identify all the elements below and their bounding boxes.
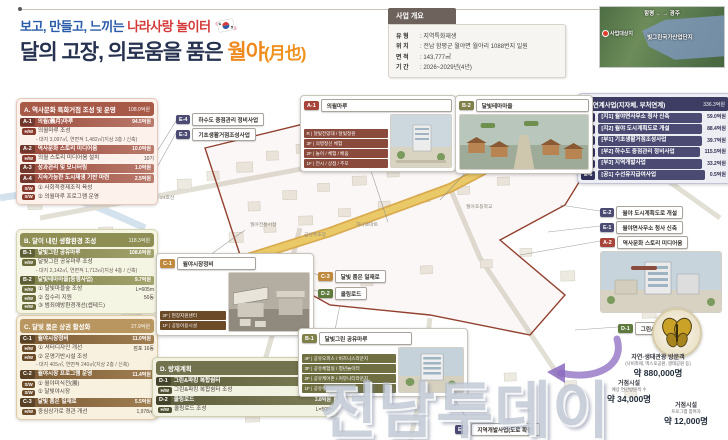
item-amount: 3.8억원 <box>315 397 331 403</box>
budget-row: S/W ① 월야미식전(展) <box>20 381 154 388</box>
section-a-total: 108.0억원 <box>128 106 150 113</box>
linked-project-row: E-4 [부2] 하수도 중점관리 정비사업 115.5억원 <box>581 147 728 157</box>
overview-label: 면 적 <box>396 52 420 61</box>
budget-row: H/W 의월 스토리 미디어움 설치 10기 <box>20 155 154 162</box>
budget-row: - 대지 3,097㎡, 연면적 1,482㎡(지상 3층 / 신축) <box>20 137 154 143</box>
item-name: [부3] 지역개발사업 <box>598 159 702 169</box>
floor-row: 3F | 공유체험실 / 청년놀이터 <box>302 364 396 373</box>
section-e-panel: E. 연계사업(지자체, 부처연계)336.3억원 E-1 [지1] 월야면사무… <box>577 93 728 184</box>
floor-row: 1F | 공동이용시설 <box>160 321 226 330</box>
item-name: [지2] 월야 도시계획도로 개설 <box>598 124 702 134</box>
budget-row: A-1 의월(義月)마루 94.5억원 <box>20 118 154 127</box>
item-amount: 0.5억원 <box>710 172 726 178</box>
callout-label: 역사문화 스토리 미디어움 <box>617 236 689 249</box>
callout-label: 기초생활거점조성사업 <box>192 128 255 141</box>
item-name: 달빛테마마을(동행사업) <box>38 277 133 284</box>
hw-sw-badge: H/W <box>22 295 36 302</box>
item-name: [지1] 월야면사무소 청사 신축 <box>598 113 702 123</box>
hw-sw-badge: S/W <box>22 381 35 388</box>
callout-code: E-4 <box>176 115 190 124</box>
item-text: 달빛그린 공유마루 조성 <box>38 259 154 266</box>
floor-row: 2F | 공유케어존 / 커뮤니티라운지 <box>302 374 396 383</box>
title-line2-hanja: (月也) <box>264 44 305 63</box>
overview-value: : 지역특화재생 <box>420 31 558 40</box>
item-code: C-3 <box>20 398 35 407</box>
item-text: ① 셔터디자인 개선 <box>38 345 131 352</box>
callout-code: B-1 <box>302 334 317 343</box>
item-text: - 대지 3,097㎡, 연면적 1,482㎡(지상 3층 / 신축) <box>36 137 154 143</box>
callout-code: E-3 <box>176 130 190 139</box>
overview-label: 기 간 <box>396 62 420 71</box>
facilities-render-image <box>600 251 722 313</box>
floor-row: R | 달빛전망대 / 달빛정원 <box>304 129 388 138</box>
item-amount: 2.5억원 <box>135 176 151 182</box>
map-callout-tag: C-3 달빛 품은 일재로 <box>318 270 386 283</box>
map-callout-tag: E-1 월야면사무소 청사 신축 <box>600 221 683 234</box>
item-text: 그린&파킹 복합쉼터 조성 <box>174 387 314 394</box>
map-callout-tag: E-5 지역개발사업(도로 확장) <box>455 423 540 436</box>
title-line2: 달의 고장, 의로움을 품은 월야(月也) <box>20 36 305 66</box>
item-amount: 10기 <box>144 156 154 162</box>
overview-label: 위 치 <box>396 41 420 50</box>
item-name: 의월(義月)마루 <box>38 119 130 126</box>
map-text-label: 월야초등학교 <box>466 203 492 210</box>
b2-render-image <box>459 114 589 170</box>
callout-label: 의월마루 <box>321 99 452 112</box>
map-callout-tag: E-3 기초생활거점조성사업 <box>176 128 256 141</box>
item-text: ① 사회적경제조직 육성 <box>38 185 154 192</box>
project-overview-box: 사업 개요 유 형 : 지역특화재생 위 치 : 전남 함평군 월야면 월야리 … <box>388 8 566 78</box>
hw-sw-badge: H/W <box>158 407 172 414</box>
callout-label: 달빛테마마을 <box>476 99 589 112</box>
item-text: 쿨링로드 조성 <box>174 406 314 413</box>
item-amount: L=605m <box>136 287 154 293</box>
linked-project-row: E-5 [부3] 지역개발사업 33.2억원 <box>581 159 728 169</box>
item-name: 달빛그린 공유마루 <box>38 250 128 257</box>
hw-sw-badge: S/W <box>22 185 35 192</box>
item-name: 달빛 품은 일재로 <box>38 399 133 406</box>
callout-box-a1: A-1 의월마루 R | 달빛전망대 / 달빛정원3F | 의병정신 체험2F … <box>300 95 456 172</box>
hw-sw-badge: H/W <box>22 304 36 311</box>
item-text: - 대지 405㎡, 연면적 240㎡(지상 2층 / 신축) <box>36 362 154 368</box>
section-a-title: A. 역사문화 특화거점 조성 및 운영 <box>24 105 116 114</box>
stat-title: 거점시설 <box>584 378 674 387</box>
callout-label: 월야시장정비 <box>177 257 256 270</box>
callout-code: B-2 <box>459 101 474 110</box>
title-line1-accent: 나라사랑 놀이터 <box>127 19 210 34</box>
budget-row: H/W ① 달빛마을숲 조성 L=605m <box>20 286 154 293</box>
item-code: B-2 <box>20 276 35 285</box>
budget-row: H/W 쿨링로드 조성 L=505m <box>156 406 334 413</box>
callout-label: 달빛 품은 일재로 <box>335 270 386 283</box>
butterfly-medallion <box>652 308 702 358</box>
map-callout-tag: A-2 역사문화 스토리 미디어움 <box>600 236 688 249</box>
budget-row: S/W ② 의월마루 프로그램 운영 <box>20 194 154 201</box>
hw-sw-badge: S/W <box>22 194 35 201</box>
item-name: 지속가능한 도시재생 기반 마련 <box>38 175 133 182</box>
budget-row: H/W ② 운영기반시설 조성 <box>20 354 154 361</box>
zone-label: 빛그린국가산업단지 <box>647 33 693 41</box>
floor-row: 4F | 공유오피스 / 비즈니스라운지 <box>302 354 396 363</box>
item-amount: 115.5억원 <box>705 149 726 155</box>
callout-box-b1: B-1 달빛그린 공유마루 4F | 공유오피스 / 비즈니스라운지3F | 공… <box>298 328 468 397</box>
hw-sw-badge: H/W <box>22 286 36 293</box>
callout-label: 지역개발사업(도로 확장) <box>471 423 540 436</box>
callout-label: 월야면사무소 청사 신축 <box>616 221 683 234</box>
item-text: - 대지 2,142㎡, 연면적 1,713㎡(지상 4층 / 신축) <box>36 268 154 274</box>
item-code: C-2 <box>20 370 35 379</box>
callout-box-b2: B-2 달빛테마마을 <box>455 95 593 174</box>
section-e-total: 336.3억원 <box>703 101 725 108</box>
budget-row: H/W 의월마루 조성 <box>20 128 154 135</box>
callout-box-c1: C-1 월야시장정비 2F | 현장지원센터1F | 공동이용시설 <box>156 253 314 336</box>
budget-row: D-2 쿨링로드 3.8억원 <box>156 396 334 405</box>
item-amount: L=505m <box>316 407 334 413</box>
section-c-total: 27.9억원 <box>131 323 150 330</box>
overview-row: 위 치 : 전남 함평군 월야면 월야리 1088번지 일원 <box>396 41 558 50</box>
floor-row: 2F | 현장지원센터 <box>160 311 226 320</box>
overview-row: 유 형 : 지역특화재생 <box>396 31 558 40</box>
budget-row: H/W 달빛그린 공유마루 조성 <box>20 259 154 266</box>
callout-label: 월야 도시계획도로 개설 <box>616 206 683 219</box>
title-line2-prefix: 달의 고장, 의로움을 품은 <box>20 41 223 64</box>
budget-row: A-4 지속가능한 도시재생 기반 마련 2.5억원 <box>20 174 154 183</box>
budget-row: H/W 중심상가로 경관 개선 1,978㎡ <box>20 409 154 416</box>
item-code: D-2 <box>156 396 171 405</box>
item-amount: 1.0억원 <box>135 165 151 171</box>
item-code: C-1 <box>20 335 35 344</box>
item-name: 성과관리 및 모니터링 <box>38 165 133 172</box>
item-name: [부1] 기초생활거점조성사업 <box>598 136 702 146</box>
section-b-panel: B. 달이 내린 생활환경 조성118.3억원 B-1 달빛그린 공유마루 10… <box>16 229 158 314</box>
callout-code: A-1 <box>304 101 319 110</box>
master-plan-poster: 보고, 만들고, 느끼는 나라사랑 놀이터 달의 고장, 의로움을 품은 월야(… <box>0 0 728 440</box>
overview-value: : 전남 함평군 월야면 월야리 1088번지 일원 <box>420 41 558 50</box>
budget-row: - 대지 405㎡, 연면적 240㎡(지상 2층 / 신축) <box>20 362 154 368</box>
callout-code: E-1 <box>600 223 614 232</box>
item-amount: 88.4억원 <box>707 126 726 132</box>
item-code: D-1 <box>156 377 171 386</box>
item-text: ③ 범죄예방환경개선(셉테드) <box>38 303 154 310</box>
callout-code: E-5 <box>455 425 469 434</box>
title-line1: 보고, 만들고, 느끼는 나라사랑 놀이터 <box>20 16 305 35</box>
linked-project-row: E-1 [지1] 월야면사무소 청사 신축 59.0억원 <box>581 113 728 123</box>
floor-row: 1F | 전시 / 상점 / 추모 <box>304 159 388 168</box>
item-text: ① 월야미식전(展) <box>38 381 154 388</box>
section-e-title: E. 연계사업(지자체, 부처연계) <box>585 100 665 109</box>
item-amount: 33.2억원 <box>707 161 726 167</box>
budget-row: B-1 달빛그린 공유마루 108.6억원 <box>20 249 154 258</box>
item-name: 월야시장정비 <box>38 336 131 343</box>
callout-code: E-2 <box>600 208 614 217</box>
floor-row: 3F | 의병정신 체험 <box>304 139 388 148</box>
item-text: 중심상가로 경관 개선 <box>38 409 134 416</box>
hw-sw-badge: H/W <box>22 354 36 361</box>
hw-sw-badge: H/W <box>22 409 36 416</box>
map-callout-tag: D-2 쿨링로드 <box>318 287 367 300</box>
overview-header: 사업 개요 <box>388 8 456 24</box>
budget-row: A-2 역사문화 스토리 미디어움 10.0억원 <box>20 145 154 154</box>
stat-title: 자연·생태관광 방문객 <box>592 352 724 361</box>
item-code: B-1 <box>20 249 35 258</box>
item-name: [부2] 하수도 중점관리 정비사업 <box>598 147 699 157</box>
item-text: ② 의월마루 프로그램 운영 <box>38 194 154 201</box>
site-pin-icon <box>602 30 609 37</box>
map-text-label: 하나로마트 <box>356 221 378 228</box>
item-text: ② 운영기반시설 조성 <box>38 354 154 361</box>
item-code: A-4 <box>20 175 35 184</box>
budget-row: - 대지 2,142㎡, 연면적 1,713㎡(지상 4층 / 신축) <box>20 268 154 274</box>
item-name: 역사문화 스토리 미디어움 <box>38 146 130 153</box>
section-b-title: B. 달이 내린 생활환경 조성 <box>24 236 96 245</box>
hw-sw-badge: H/W <box>22 128 36 135</box>
section-a-panel: A. 역사문화 특화거점 조성 및 운영108.0억원 A-1 의월(義月)마루… <box>16 98 158 205</box>
overview-value: : 2026~2029년(4년) <box>420 62 558 71</box>
callout-label: 달빛그린 공유마루 <box>319 332 412 345</box>
budget-row: H/W ② 집수리 지원 50동 <box>20 295 154 302</box>
item-text: 의월마루 조성 <box>38 128 154 135</box>
overview-row: 면 적 : 143,777㎡ <box>396 52 558 61</box>
stat-title: 거점시설 <box>648 400 724 409</box>
hw-sw-badge: S/W <box>22 390 35 397</box>
budget-row: C-3 달빛 품은 일재로 5.5억원 <box>20 398 154 407</box>
overview-label: 유 형 <box>396 31 420 40</box>
poster-title: 보고, 만들고, 느끼는 나라사랑 놀이터 달의 고장, 의로움을 품은 월야(… <box>20 16 305 66</box>
overview-row: 기 간 : 2026~2029년(4년) <box>396 62 558 71</box>
b1-render-image <box>398 347 464 393</box>
linked-project-row: E-2 [지2] 월야 도시계획도로 개설 88.4억원 <box>581 124 728 134</box>
floor-row: 2F | 놀이 / 체험 / 배움 <box>304 149 388 158</box>
overview-value: : 143,777㎡ <box>420 52 558 61</box>
budget-row: C-2 월야시장 프로그램 운영 11.4억원 <box>20 370 154 379</box>
callout-code: C-1 <box>160 259 175 268</box>
locator-satellite-map: 함평 ← → 광주 빛그린국가산업단지 사업대상지 <box>599 6 725 68</box>
c1-photo <box>228 272 310 332</box>
budget-row: A-3 성과관리 및 모니터링 1.0억원 <box>20 164 154 173</box>
section-b-total: 118.3억원 <box>129 237 150 244</box>
section-c-panel: C. 달빛 품은 상권 활성화27.9억원 C-1 월야시장정비 11.0억원 … <box>16 315 158 420</box>
section-c-title: C. 달빛 품은 상권 활성화 <box>24 322 90 331</box>
budget-row: S/W ① 사회적경제조직 육성 <box>20 185 154 192</box>
callout-code: D-2 <box>318 289 333 298</box>
item-name: 쿨링로드 <box>174 397 313 404</box>
item-amount: 59.0억원 <box>707 114 726 120</box>
hw-sw-badge: H/W <box>22 345 36 352</box>
map-callout-tag: E-2 월야 도시계획도로 개설 <box>600 206 683 219</box>
title-line2-accent: 월야 <box>227 41 264 64</box>
item-text: ② 달빛야시장 <box>38 389 154 396</box>
item-name: 그린&파킹 복합쉼터 <box>174 378 313 385</box>
budget-row: H/W ③ 범죄예방환경개선(셉테드) <box>20 303 154 310</box>
a1-render-image <box>390 114 452 168</box>
budget-row: S/W ② 달빛야시장 <box>20 389 154 396</box>
site-label: 사업대상지 <box>602 30 633 37</box>
callout-label: 하수도 중점관리 정비사업 <box>192 113 264 126</box>
budget-row: H/W ① 셔터디자인 개선 점포 16동 <box>20 345 154 352</box>
map-text-label: 월야전통시장 <box>250 221 276 228</box>
item-name: [공1] 수선유지급여사업 <box>598 170 704 180</box>
callout-code: A-2 <box>600 238 615 247</box>
stat-value: 약 12,000명 <box>648 415 724 427</box>
section-d-title: D. 방재계획 <box>160 364 192 373</box>
item-amount: 점포 16동 <box>133 346 154 352</box>
linked-project-row: E-3 [부1] 기초생활거점조성사업 39.7억원 <box>581 136 728 146</box>
item-amount: 39.7억원 <box>707 138 726 144</box>
item-code: A-2 <box>20 145 35 154</box>
map-text-label: 금성주조장 <box>304 231 326 238</box>
budget-row: B-2 달빛테마마을(동행사업) 9.7억원 <box>20 276 154 285</box>
item-text: 의월 스토리 미디어움 설치 <box>38 155 142 162</box>
linked-project-row: E-6 [공1] 수선유지급여사업 0.5억원 <box>581 170 728 180</box>
item-code: A-3 <box>20 164 35 173</box>
item-text: ① 달빛마을숲 조성 <box>38 286 134 293</box>
item-name: 월야시장 프로그램 운영 <box>38 371 131 378</box>
item-amount: 11.0억원 <box>132 336 151 342</box>
hw-sw-badge: H/W <box>158 387 172 394</box>
overview-body: 유 형 : 지역특화재생 위 치 : 전남 함평군 월야면 월야리 1088번지… <box>388 24 566 78</box>
item-text: ② 집수리 지원 <box>38 295 142 302</box>
route-labels: 함평 ← → 광주 <box>600 9 724 17</box>
hw-sw-badge: H/W <box>22 259 36 266</box>
korea-flag-icon <box>213 15 238 35</box>
floor-row: 1F | 공유주방 / 복합카페 <box>302 384 396 393</box>
butterfly-icon <box>660 316 694 350</box>
item-amount: 108.6억원 <box>129 250 151 256</box>
item-amount: 5.5억원 <box>135 399 151 405</box>
stat-eco-tourism: 자연·생태관광 방문객 (나비축제, 엑스포공원, 생태공원 등) 약 880,… <box>592 352 724 379</box>
callout-code: C-3 <box>318 272 333 281</box>
item-amount: 9.7억원 <box>135 277 151 283</box>
item-amount: 94.5억원 <box>132 119 151 125</box>
stat-program-users: 거점시설 프로그램 참여자 약 12,000명 <box>648 400 724 427</box>
item-code: A-1 <box>20 118 35 127</box>
budget-row: C-1 월야시장정비 11.0억원 <box>20 335 154 344</box>
callout-label: 쿨링로드 <box>335 287 368 300</box>
map-callout-tag: E-4 하수도 중점관리 정비사업 <box>176 113 264 126</box>
title-line1-prefix: 보고, 만들고, 느끼는 <box>20 19 124 34</box>
item-amount: 10.0억원 <box>132 146 151 152</box>
item-amount: 50동 <box>144 295 154 301</box>
item-amount: 11.4억원 <box>132 372 151 378</box>
hw-sw-badge: H/W <box>22 155 36 162</box>
